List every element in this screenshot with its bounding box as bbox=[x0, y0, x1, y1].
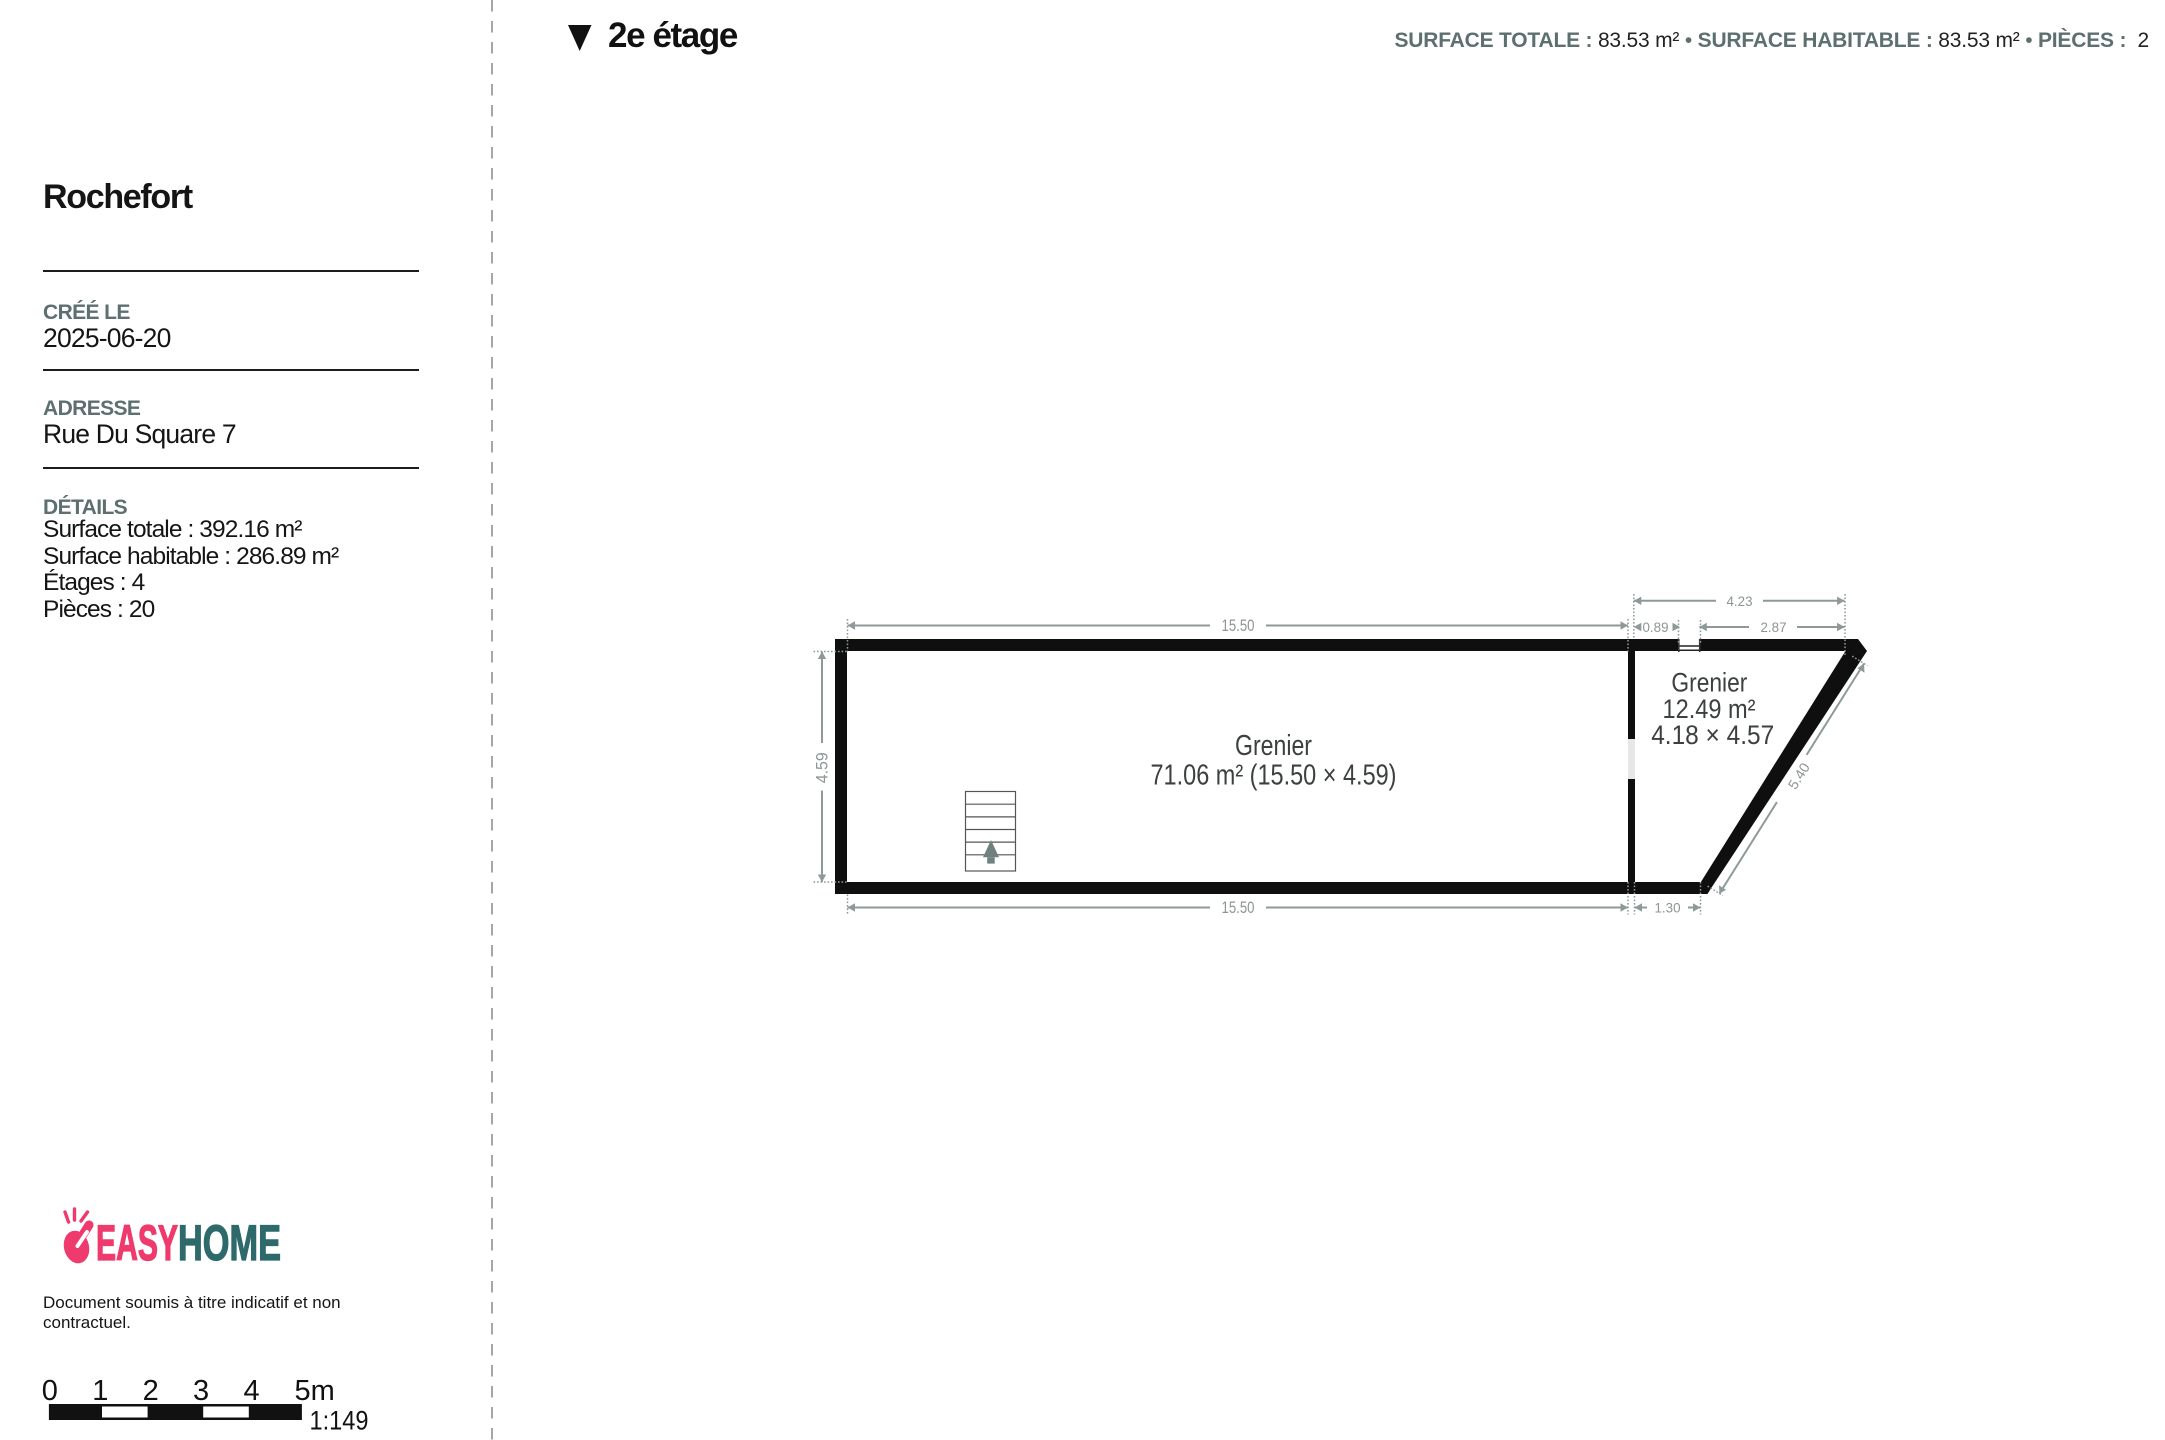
svg-text:15.50: 15.50 bbox=[1222, 616, 1255, 635]
svg-text:4.23: 4.23 bbox=[1727, 594, 1753, 609]
svg-text:0.89: 0.89 bbox=[1643, 620, 1669, 635]
svg-text:Grenier: Grenier bbox=[1235, 730, 1312, 762]
svg-text:4.18 × 4.57: 4.18 × 4.57 bbox=[1651, 720, 1774, 750]
svg-text:15.50: 15.50 bbox=[1222, 898, 1255, 917]
svg-text:Grenier: Grenier bbox=[1671, 668, 1747, 698]
svg-text:1.30: 1.30 bbox=[1655, 901, 1681, 916]
svg-text:4.59: 4.59 bbox=[813, 752, 832, 783]
svg-text:71.06 m² (15.50 × 4.59): 71.06 m² (15.50 × 4.59) bbox=[1151, 760, 1397, 792]
svg-text:2.87: 2.87 bbox=[1761, 620, 1787, 635]
